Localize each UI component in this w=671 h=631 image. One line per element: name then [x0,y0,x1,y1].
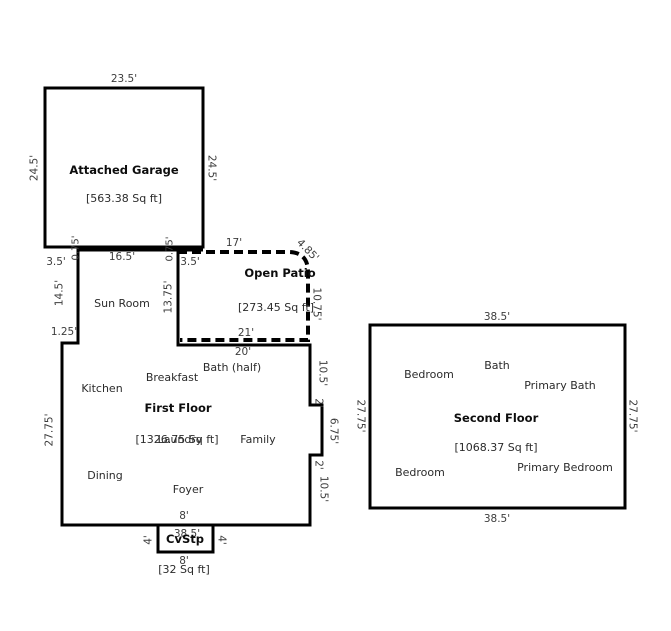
room-primary-bath: Primary Bath [524,379,596,392]
garage-width-top-label: 23.5' [111,73,137,85]
sunroom-step-label: 1.25' [51,326,77,338]
room-dining: Dining [87,469,123,482]
firstfloor-right-seg3-label: 6.75' [328,418,340,444]
sunroom-width-top-label: 16.5' [109,251,135,263]
firstfloor-right-seg4-label: 2' [313,460,325,470]
firstfloor-width-top-label: 20' [235,346,251,358]
patio-name: Open Patio [244,266,315,280]
secondfloor-height-left-label: 27.75' [355,400,367,433]
firstfloor-right-seg2-label: 2' [313,398,325,408]
secondfloor-area-label: [1068.37 Sq ft] [454,441,537,454]
secondfloor-width-top-label: 38.5' [484,311,510,323]
stoop-name: CvStp [166,532,204,546]
firstfloor-name: First Floor [144,401,211,415]
firstfloor-right-seg1-label: 10.5' [317,360,329,386]
firstfloor-right-seg5-label: 10.5' [318,476,330,502]
patio-area-label: [273.45 Sq ft] [238,301,314,314]
garage-height-left-label: 24.5' [29,155,41,181]
sunroom-height-left-label: 14.5' [54,280,66,306]
patio-width-top-label: 17' [226,237,242,249]
sunroom-height-right-label: 13.75' [163,281,175,314]
floor-plan-canvas: 23.5' 24.5' 24.5' Attached Garage [563.3… [0,0,671,631]
room-primary-bedroom: Primary Bedroom [517,461,613,474]
patio-width-bottom-label: 21' [238,327,254,339]
room-breakfast: Breakfast [146,371,199,384]
junction-gap-left-label: 3.5' [46,256,66,268]
secondfloor-name: Second Floor [454,411,539,425]
secondfloor-width-bottom-label: 38.5' [484,513,510,525]
room-bedroom-top: Bedroom [404,368,454,381]
garage-area-label: [563.38 Sq ft] [86,192,162,205]
stoop-area-label: [32 Sq ft] [158,563,210,576]
room-laundry: Laundry [158,433,203,446]
firstfloor-height-left-label: 27.75' [44,414,56,447]
room-family: Family [240,433,276,446]
room-bath-half: Bath (half) [203,361,261,374]
floor-plan: 23.5' 24.5' 24.5' Attached Garage [563.3… [0,0,671,631]
junction-gap-right-label: 3.5' [180,256,200,268]
stoop-side-left-label: 4' [143,535,155,545]
garage-height-right-label: 24.5' [206,155,218,181]
junction-offset-left-label: 0.75' [71,235,82,260]
room-bath: Bath [484,359,510,372]
room-kitchen: Kitchen [81,382,122,395]
stoop-width-inner-label: 8' [179,510,189,522]
junction-offset-right-label: 0.75' [165,236,176,261]
sunroom-name: Sun Room [94,297,150,310]
stoop-side-right-label: 4' [216,535,228,545]
patio-corner-label: 4.85' [294,237,321,264]
room-bedroom-bottom: Bedroom [395,466,445,479]
patio-height-right-label: 10.75' [311,288,323,321]
garage-name: Attached Garage [69,163,179,177]
room-foyer: Foyer [173,483,204,496]
secondfloor-height-right-label: 27.75' [627,400,639,433]
